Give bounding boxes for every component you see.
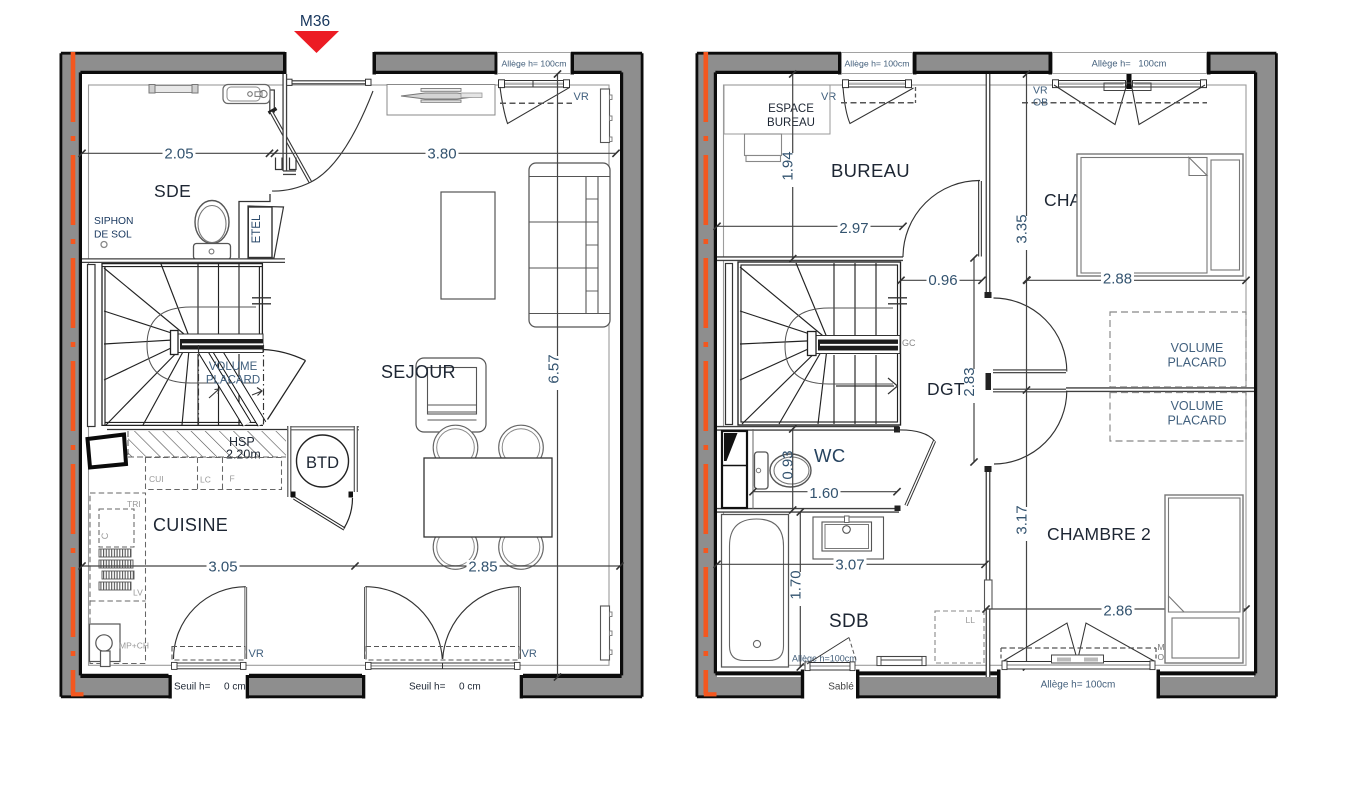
svg-text:2.20m: 2.20m — [226, 448, 261, 462]
svg-text:3.35: 3.35 — [1014, 214, 1031, 243]
svg-text:Seuil h=: Seuil h= — [409, 682, 446, 693]
svg-text:Allège h= 100cm: Allège h= 100cm — [845, 59, 910, 69]
svg-text:0 cm: 0 cm — [224, 682, 246, 693]
svg-text:3.07: 3.07 — [835, 557, 864, 574]
svg-text:BTD: BTD — [306, 454, 339, 472]
svg-text:DE SOL: DE SOL — [94, 230, 132, 241]
svg-text:VR: VR — [249, 648, 264, 660]
svg-text:ESPACE: ESPACE — [768, 103, 814, 115]
svg-text:C: C — [100, 532, 110, 539]
svg-text:Allège h= 100cm: Allège h= 100cm — [1041, 680, 1116, 691]
svg-text:6.57: 6.57 — [546, 354, 563, 383]
svg-text:3.05: 3.05 — [208, 559, 237, 576]
svg-text:0.96: 0.96 — [928, 272, 957, 289]
svg-text:LV: LV — [133, 588, 143, 598]
svg-text:2.86: 2.86 — [1103, 603, 1132, 620]
svg-text:WC: WC — [814, 445, 846, 466]
svg-text:GC: GC — [902, 338, 916, 348]
svg-text:Allège h= 100cm: Allège h= 100cm — [1092, 59, 1167, 69]
svg-text:MP+CH: MP+CH — [119, 641, 149, 651]
svg-text:VR: VR — [574, 91, 589, 103]
svg-text:F: F — [230, 474, 235, 484]
svg-text:LC: LC — [200, 475, 211, 485]
svg-text:VR: VR — [821, 91, 836, 103]
svg-text:M36: M36 — [300, 13, 330, 30]
svg-text:2.88: 2.88 — [1103, 271, 1132, 288]
svg-text:VOLUME: VOLUME — [209, 361, 258, 373]
svg-text:1.70: 1.70 — [787, 570, 804, 599]
svg-text:VOLUME: VOLUME — [1171, 341, 1224, 355]
svg-text:Allège h= 100cm: Allège h= 100cm — [502, 59, 567, 69]
svg-text:LL: LL — [966, 615, 976, 625]
svg-text:0 cm: 0 cm — [459, 682, 481, 693]
svg-text:2.97: 2.97 — [839, 220, 868, 237]
svg-text:SIPHON: SIPHON — [94, 216, 133, 227]
svg-text:PLACARD: PLACARD — [206, 375, 260, 387]
svg-text:PLACARD: PLACARD — [1167, 414, 1226, 428]
svg-text:3.17: 3.17 — [1014, 505, 1031, 534]
svg-text:CHAMBRE 2: CHAMBRE 2 — [1047, 524, 1151, 544]
svg-text:Seuil h=: Seuil h= — [174, 682, 211, 693]
svg-text:VOLUME: VOLUME — [1171, 399, 1224, 413]
svg-text:O: O — [1158, 652, 1165, 662]
svg-text:CUI: CUI — [149, 474, 164, 484]
svg-text:2.85: 2.85 — [468, 559, 497, 576]
svg-text:3.80: 3.80 — [427, 146, 456, 163]
svg-text:2.05: 2.05 — [164, 146, 193, 163]
svg-text:VR: VR — [1033, 85, 1048, 97]
svg-text:CUISINE: CUISINE — [153, 515, 228, 535]
svg-text:M: M — [1158, 642, 1165, 652]
svg-text:OB: OB — [1033, 97, 1048, 109]
svg-text:SDB: SDB — [829, 611, 869, 632]
svg-text:PLACARD: PLACARD — [1167, 356, 1226, 370]
svg-text:BUREAU: BUREAU — [767, 117, 815, 129]
svg-text:1.94: 1.94 — [780, 151, 797, 180]
svg-text:BUREAU: BUREAU — [831, 160, 910, 181]
svg-text:ETEL: ETEL — [251, 214, 263, 243]
svg-text:Sablé: Sablé — [828, 682, 854, 693]
svg-text:VR: VR — [522, 648, 537, 660]
svg-text:TRI: TRI — [127, 499, 141, 509]
svg-text:1.60: 1.60 — [809, 485, 838, 502]
svg-text:2.83: 2.83 — [961, 367, 978, 396]
svg-text:SEJOUR: SEJOUR — [381, 362, 456, 382]
svg-text:0.93: 0.93 — [780, 450, 797, 479]
svg-text:SDE: SDE — [154, 181, 191, 201]
svg-text:DGT: DGT — [927, 379, 965, 399]
